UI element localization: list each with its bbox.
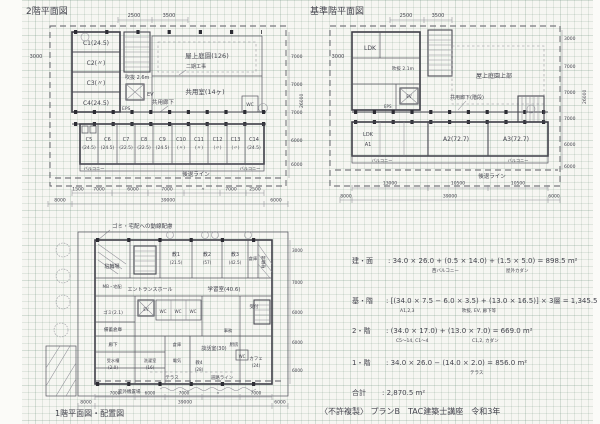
dim-text: 6000 bbox=[291, 138, 303, 144]
ev-label: EV bbox=[147, 92, 154, 98]
leader-line bbox=[179, 70, 186, 75]
dim-text: 6000 bbox=[127, 187, 139, 193]
dim-text: 7000 bbox=[291, 82, 303, 88]
stair-treads bbox=[522, 96, 538, 122]
dim-text: 6000 bbox=[274, 400, 286, 406]
corridor-label: 共用廊下 bbox=[152, 98, 175, 106]
room-label: 倉庫 bbox=[249, 255, 257, 262]
wc-label: WC bbox=[239, 354, 246, 359]
calc-head: 建・面 bbox=[352, 256, 373, 265]
dim-text: 〃 bbox=[201, 188, 206, 193]
room-dividers bbox=[95, 296, 240, 384]
room-label: 教4 bbox=[195, 359, 202, 366]
room-label: ゴミ(2.1) bbox=[103, 309, 123, 316]
unit-name: C6 bbox=[104, 137, 111, 143]
calc-body: : 2,870.5 m² bbox=[382, 389, 425, 397]
dim-text: 7000 bbox=[110, 391, 121, 396]
calc-body: : 34.0 × 26.0 + (0.5 × 14.0) + (1.5 × 5.… bbox=[388, 257, 578, 265]
room-area: (2.0) bbox=[108, 365, 118, 370]
grid-bubble bbox=[202, 232, 209, 239]
plan-2f: 2階平面図 2500 3500 3000 C1(24.5) C2(〃) C3(〃… bbox=[26, 6, 305, 207]
unit-name: C10 bbox=[176, 137, 186, 143]
dim-text: 13000 bbox=[383, 181, 397, 187]
tree-symbol bbox=[56, 243, 70, 257]
unit-area: (〃) bbox=[213, 145, 221, 151]
unit-dividers bbox=[98, 124, 245, 164]
dim-text: 6000 bbox=[270, 198, 282, 204]
laundry-unit bbox=[90, 126, 96, 133]
unit-name: C14 bbox=[249, 137, 259, 143]
room-label: LDK bbox=[363, 132, 374, 138]
leader-line bbox=[458, 101, 466, 110]
dim-text: 7000 bbox=[564, 90, 576, 96]
room-label: 談話室(30) bbox=[201, 345, 226, 352]
ev-label: EV bbox=[406, 94, 412, 99]
dim-text: 7000 bbox=[179, 391, 190, 396]
roof-garden-label: 屋上庭園(126) bbox=[185, 51, 228, 60]
dim-text: 2500 bbox=[400, 13, 413, 19]
calc-sub: A1,2,3 bbox=[400, 308, 415, 314]
room-area: (21.5) bbox=[170, 260, 183, 265]
unit-name: C9 bbox=[159, 137, 166, 143]
tree-symbol bbox=[54, 323, 68, 337]
stair-treads bbox=[428, 35, 452, 70]
stair-treads bbox=[134, 251, 156, 271]
stair-treads bbox=[124, 37, 150, 67]
dim-text: 〃 bbox=[216, 391, 220, 396]
room-label: 廊下 bbox=[109, 341, 118, 348]
leader-line bbox=[98, 230, 110, 240]
dim-text: 3000 bbox=[30, 54, 43, 60]
grid-bubble bbox=[212, 232, 219, 239]
room-label: 教1 bbox=[172, 251, 180, 258]
stair-std bbox=[428, 30, 452, 76]
dim-text: 6000 bbox=[548, 194, 560, 200]
eps-label: EPS bbox=[122, 106, 131, 112]
unit-name: C12 bbox=[213, 137, 223, 143]
calc-sub: テラス bbox=[470, 370, 484, 376]
unit-name: C11 bbox=[194, 137, 204, 143]
dim-text: 3000 bbox=[332, 54, 345, 60]
area-calculations: 建・面 : 34.0 × 26.0 + (0.5 × 14.0) + (1.5 … bbox=[352, 256, 600, 397]
room-label: C1(24.5) bbox=[83, 40, 109, 47]
dim-text: 7000 bbox=[291, 110, 303, 116]
hatch-lines bbox=[46, 346, 76, 396]
dim-text: 6000 bbox=[292, 368, 303, 373]
room-area: (24) bbox=[252, 363, 261, 368]
plan-2f-title: 2階平面図 bbox=[26, 6, 68, 17]
unit-name: A1 bbox=[365, 142, 372, 148]
drawing-sheet: 2階平面図 2500 3500 3000 C1(24.5) C2(〃) C3(〃… bbox=[0, 0, 600, 424]
wc-label: WC bbox=[189, 309, 196, 314]
room-label: 駐輪場 bbox=[260, 255, 267, 268]
room-area: (16) bbox=[146, 365, 155, 370]
setback-label: 後退ライン bbox=[478, 172, 506, 180]
unit-name: C5 bbox=[86, 137, 93, 143]
laundry-unit bbox=[82, 126, 88, 133]
plan-standard: 基準階平面図 2500 3500 3000 LDK 吹抜 2.1m EV EPS… bbox=[310, 5, 588, 203]
leader-line bbox=[160, 106, 168, 112]
dim-text: 7000 bbox=[93, 187, 105, 193]
dim-text: 7000 bbox=[225, 187, 237, 193]
sheet-footer: 〈不許複製〉 プランB TAC建築士講座 令和3年 bbox=[320, 406, 500, 416]
dim-text: 2500 bbox=[249, 187, 261, 193]
approach-hatch bbox=[46, 346, 76, 396]
unit-area: (24.5) bbox=[156, 145, 170, 151]
calc-head: 基・階 bbox=[352, 296, 373, 305]
common-room-label: 共用室(14ヶ) bbox=[185, 87, 224, 96]
setback-label: 後退ライン bbox=[182, 170, 210, 178]
room-label: C2(〃) bbox=[87, 60, 106, 67]
dim-text: 39000 bbox=[161, 198, 175, 204]
room-label: 教3 bbox=[231, 251, 239, 258]
room-label: 教2 bbox=[203, 251, 211, 258]
unit-area: (〃) bbox=[231, 145, 239, 151]
room-label: 倉庫 bbox=[173, 341, 181, 348]
plan-sheet-svg: 2階平面図 2500 3500 3000 C1(24.5) C2(〃) C3(〃… bbox=[0, 0, 600, 424]
calc-sub: C5〜14, C1〜4 bbox=[396, 338, 429, 344]
dim-text: 2500 bbox=[128, 13, 141, 19]
calc-sub: 吹抜, EV, 廊下等 bbox=[462, 307, 497, 314]
dim-text: 8000 bbox=[340, 194, 352, 200]
tree-symbol bbox=[56, 295, 70, 309]
ev-label: EV bbox=[143, 307, 149, 312]
plan-1f: ゴミ・宅配への動線配慮 駐輪場 MB・宅配 bbox=[46, 222, 303, 418]
stair-1f bbox=[134, 246, 156, 274]
roof-label: 屋上庭園上部 bbox=[476, 72, 512, 80]
dim-text: 3000 bbox=[564, 36, 576, 42]
room-label: C4(24.5) bbox=[83, 100, 109, 107]
corridor-label: 共用廊下(階段) bbox=[450, 94, 484, 101]
unit-area: (22.5) bbox=[119, 145, 133, 151]
eps-label: EPS bbox=[384, 104, 392, 109]
balcony-strip bbox=[80, 164, 264, 171]
dim-text: 8000 bbox=[80, 400, 92, 406]
stair-note: 吹抜 2.6m bbox=[125, 74, 150, 81]
balcony-label: バルコニー bbox=[84, 166, 105, 171]
calc-sub: 西バルコニー bbox=[432, 268, 459, 274]
calc-sub: C1,2, カダン bbox=[472, 337, 499, 344]
calc-sub: 屋外カダン bbox=[506, 267, 529, 274]
dim-text: 10500 bbox=[511, 181, 525, 187]
flow-note: ゴミ・宅配への動線配慮 bbox=[112, 222, 173, 230]
outdoor-units-line bbox=[160, 388, 256, 391]
tree-symbol bbox=[56, 269, 70, 283]
wc-label: WC bbox=[159, 309, 166, 314]
plan-1f-title: 1階平面図・配置図 bbox=[55, 408, 124, 418]
unit-name: C8 bbox=[141, 137, 148, 143]
room-label: 厨房 bbox=[230, 341, 239, 348]
unit-name: C7 bbox=[123, 137, 130, 143]
dim-text: 6000 bbox=[291, 162, 303, 168]
dim-text: 39000 bbox=[443, 194, 457, 200]
room-label: MB・宅配 bbox=[102, 283, 122, 290]
unit-name: A3(72.7) bbox=[503, 136, 529, 143]
calc-head: 1・階 bbox=[352, 358, 370, 367]
unit-area: (24.5) bbox=[82, 145, 96, 151]
plan-std-title: 基準階平面図 bbox=[310, 5, 364, 17]
balcony-label: バルコニー bbox=[240, 166, 261, 171]
calc-head: 合計 bbox=[352, 388, 366, 397]
dim-text: 7000 bbox=[161, 187, 173, 193]
unit-partitions bbox=[380, 122, 404, 156]
room-label: 備蓄倉庫 bbox=[104, 326, 122, 333]
roof-garden-note: 二期工事 bbox=[186, 63, 206, 70]
dim-text: 3500 bbox=[432, 13, 445, 19]
dim-text: 6000 bbox=[292, 310, 303, 315]
room-label: 学習室(40.6) bbox=[207, 285, 240, 293]
wc-label: WC bbox=[174, 309, 181, 314]
room-area: (57) bbox=[203, 260, 212, 265]
dim-text: 7000 bbox=[291, 54, 303, 60]
balcony-label: バルコニー bbox=[372, 158, 393, 163]
room-label: LDK bbox=[364, 45, 377, 52]
road-label: 道路ライン bbox=[211, 374, 234, 381]
room-label: 洗濯室 bbox=[144, 357, 157, 364]
elevator-x bbox=[126, 84, 144, 100]
unit-area: (〃) bbox=[195, 145, 203, 151]
room-label: 受水槽 bbox=[107, 357, 120, 364]
dim-text: 6000 bbox=[292, 340, 303, 345]
unit-area: (〃) bbox=[177, 145, 185, 151]
wc-label: WC bbox=[246, 102, 254, 108]
dim-text: 26000 bbox=[299, 94, 305, 108]
calc-body: : (34.0 × 17.0) + (13.0 × 7.0) = 669.0 m… bbox=[386, 327, 533, 335]
room-label: 駐輪場 bbox=[104, 263, 119, 270]
stair-1f-east bbox=[254, 300, 270, 324]
balcony-label: バルコニー bbox=[508, 158, 529, 163]
dim-text: 7000 bbox=[251, 391, 262, 396]
unit-area: (22.5) bbox=[137, 145, 151, 151]
dim-text: 3000 bbox=[292, 248, 303, 253]
dim-text: 8000 bbox=[54, 198, 66, 204]
room-label: 電気 bbox=[173, 357, 181, 364]
dim-text: 6000 bbox=[564, 164, 576, 170]
room-label: 事務 bbox=[224, 327, 233, 334]
dim-text: 39000 bbox=[178, 400, 192, 406]
unit-area: (24.5) bbox=[101, 145, 115, 151]
room-area: (42.5) bbox=[229, 260, 242, 265]
dim-text: 1500 bbox=[72, 187, 84, 193]
grid-bubble bbox=[167, 232, 174, 239]
outdoor-units-label: 室外機置場 bbox=[118, 388, 141, 395]
dim-text: 10500 bbox=[451, 181, 465, 187]
room-label: テラス bbox=[165, 375, 179, 381]
unit-area: (24.5) bbox=[247, 145, 261, 151]
unit-name: C13 bbox=[231, 137, 241, 143]
dim-text: 7000 bbox=[564, 116, 576, 122]
dim-text: 6000 bbox=[145, 391, 156, 396]
room-label: C3(〃) bbox=[87, 80, 106, 87]
calc-body: : [(34.0 × 7.5 − 6.0 × 3.5) + (13.0 × 16… bbox=[386, 297, 600, 305]
dim-text: 7000 bbox=[564, 64, 576, 70]
grid-bubble bbox=[245, 232, 252, 239]
dim-text: 6000 bbox=[564, 142, 576, 148]
room-label: カフェ bbox=[249, 356, 263, 362]
calc-head: 2・階 bbox=[352, 326, 370, 335]
dim-text: 7000 bbox=[292, 280, 303, 285]
room-label: エントランスホール bbox=[128, 287, 173, 293]
calc-body: : 34.0 × 26.0 − (14.0 × 2.0) = 856.0 m² bbox=[386, 359, 527, 367]
unit-name: A2(72.7) bbox=[443, 136, 469, 143]
dim-text: 3500 bbox=[163, 13, 176, 19]
stair-note: 吹抜 2.1m bbox=[392, 65, 414, 72]
dim-text: 26000 bbox=[582, 90, 588, 104]
room-area: (28) bbox=[195, 367, 204, 372]
